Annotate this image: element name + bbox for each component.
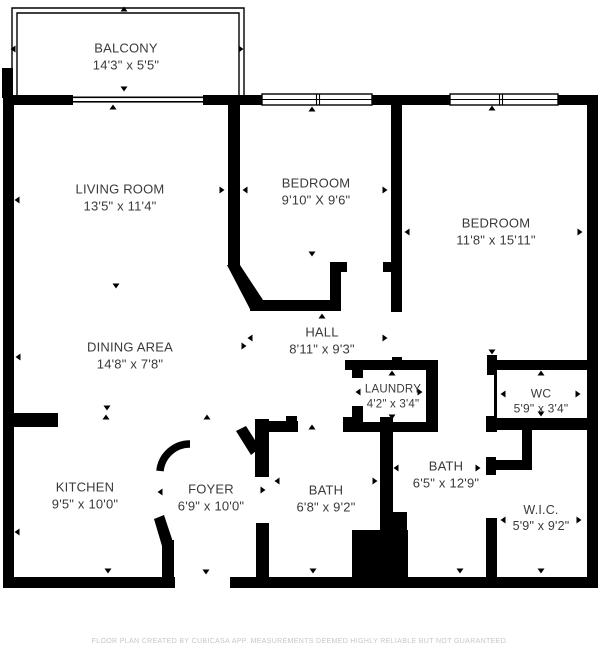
- room-dims: 9'10" X 9'6": [282, 192, 351, 209]
- dimension-marker-icon: [538, 371, 545, 376]
- wall: [345, 360, 438, 370]
- room-name: BEDROOM: [456, 215, 535, 232]
- dimension-marker-icon: [239, 46, 244, 53]
- room-dims: 5'9" x 9'2": [513, 518, 570, 534]
- wall-diagonal: [227, 265, 263, 311]
- room-name: FOYER: [178, 481, 244, 498]
- wall: [391, 105, 402, 312]
- room-dims: 14'8" x 7'8": [87, 356, 173, 373]
- dimension-marker-icon: [501, 391, 506, 398]
- dimension-marker-icon: [383, 187, 388, 194]
- room-label-bedroom-1: BEDROOM 9'10" X 9'6": [282, 175, 351, 208]
- dimension-marker-icon: [383, 335, 388, 342]
- sliding-door: [73, 101, 203, 103]
- room-dims: 6'5" x 12'9": [413, 475, 479, 492]
- room-label-balcony: BALCONY 14'3" x 5'5": [93, 40, 159, 73]
- room-name: LAUNDRY: [365, 382, 421, 397]
- dimension-marker-icon: [309, 107, 316, 112]
- dimension-marker-icon: [248, 335, 253, 342]
- room-name: BALCONY: [93, 40, 159, 57]
- dimension-marker-icon: [11, 46, 16, 53]
- dimension-marker-icon: [113, 284, 120, 289]
- room-dims: 8'11" x 9'3": [289, 341, 355, 358]
- dimension-marker-icon: [242, 343, 247, 350]
- dimension-marker-icon: [15, 197, 20, 204]
- wall: [3, 95, 14, 588]
- dimension-marker-icon: [203, 570, 210, 575]
- wall: [162, 540, 174, 578]
- room-dims: 9'5" x 10'0": [52, 496, 118, 513]
- sliding-door: [73, 97, 203, 99]
- dimension-marker-icon: [16, 354, 21, 361]
- wall: [486, 518, 497, 577]
- wall: [2, 68, 13, 98]
- wall: [352, 370, 363, 378]
- wall: [330, 262, 347, 272]
- dimension-marker-icon: [394, 465, 399, 472]
- dimension-marker-icon: [356, 389, 361, 396]
- room-name: KITCHEN: [52, 479, 118, 496]
- wall: [265, 421, 298, 432]
- room-dims: 4'2" x 3'4": [365, 397, 421, 412]
- wall: [372, 95, 450, 105]
- room-dims: 11'8" x 15'11": [456, 232, 535, 249]
- wall: [250, 300, 341, 311]
- room-dims: 6'9" x 10'0": [178, 498, 244, 515]
- wall-arc: [160, 444, 190, 471]
- dimension-marker-icon: [15, 529, 20, 536]
- thin-wall: [494, 370, 497, 418]
- dimension-marker-icon: [489, 350, 496, 355]
- room-label-living-room: LIVING ROOM 13'5" x 11'4": [76, 181, 165, 214]
- dimension-marker-icon: [405, 229, 410, 236]
- footer-disclaimer: FLOOR PLAN CREATED BY CUBICASA APP. MEAS…: [0, 638, 600, 645]
- room-name: BATH: [413, 458, 479, 475]
- dimension-marker-icon: [103, 415, 110, 420]
- dimension-marker-icon: [538, 569, 545, 574]
- room-label-wic: W.I.C. 5'9" x 9'2": [513, 502, 570, 534]
- dimension-marker-icon: [309, 425, 316, 430]
- wall: [256, 523, 269, 578]
- dimension-marker-icon: [389, 371, 396, 376]
- dimension-marker-icon: [373, 478, 378, 485]
- dimension-marker-icon: [457, 569, 464, 574]
- wall: [487, 418, 587, 430]
- room-name: BEDROOM: [282, 175, 351, 192]
- dimension-marker-icon: [243, 187, 248, 194]
- room-label-bedroom-2: BEDROOM 11'8" x 15'11": [456, 215, 535, 248]
- dimension-marker-icon: [104, 406, 111, 411]
- dimension-marker-icon: [204, 415, 211, 420]
- wall: [426, 360, 438, 432]
- wall: [3, 413, 58, 427]
- dimension-marker-icon: [105, 569, 112, 574]
- wall-diagonal: [154, 515, 173, 546]
- dimension-marker-icon: [158, 489, 163, 496]
- wall: [203, 95, 262, 105]
- dimension-marker-icon: [309, 252, 316, 257]
- dimension-marker-icon: [577, 517, 582, 524]
- dimension-marker-icon: [310, 569, 317, 574]
- wall: [3, 577, 175, 588]
- dimension-marker-icon: [576, 391, 581, 398]
- room-label-kitchen: KITCHEN 9'5" x 10'0": [52, 479, 118, 512]
- room-label-hall: HALL 8'11" x 9'3": [289, 324, 355, 357]
- room-label-laundry: LAUNDRY 4'2" x 3'4": [365, 382, 421, 411]
- dimension-marker-icon: [319, 314, 326, 319]
- dimension-marker-icon: [261, 487, 266, 494]
- room-name: DINING AREA: [87, 339, 173, 356]
- room-name: BATH: [296, 482, 355, 499]
- room-name: HALL: [289, 324, 355, 341]
- room-name: LIVING ROOM: [76, 181, 165, 198]
- wall: [487, 360, 587, 370]
- dimension-marker-icon: [578, 229, 583, 236]
- wall: [489, 460, 532, 470]
- room-label-bath-2: BATH 6'5" x 12'9": [413, 458, 479, 491]
- wall: [286, 416, 297, 422]
- floor-plan: BALCONY 14'3" x 5'5" LIVING ROOM 13'5" x…: [0, 0, 600, 651]
- room-dims: 6'8" x 9'2": [296, 499, 355, 516]
- room-dims: 13'5" x 11'4": [76, 198, 165, 215]
- dimension-marker-icon: [220, 187, 225, 194]
- dimension-marker-icon: [489, 106, 496, 111]
- wall: [380, 512, 407, 578]
- room-name: W.I.C.: [513, 502, 570, 518]
- room-label-foyer: FOYER 6'9" x 10'0": [178, 481, 244, 514]
- room-label-bath-1: BATH 6'8" x 9'2": [296, 482, 355, 515]
- dimension-marker-icon: [501, 517, 506, 524]
- wall: [230, 577, 598, 588]
- room-name: WC: [514, 387, 569, 402]
- wall: [587, 95, 598, 588]
- dimension-marker-icon: [121, 87, 128, 92]
- room-label-wc: WC 5'9" x 3'4": [514, 387, 569, 418]
- dimension-marker-icon: [275, 478, 280, 485]
- room-dims: 5'9" x 3'4": [514, 402, 569, 417]
- dimension-marker-icon: [110, 105, 117, 110]
- wall: [228, 105, 240, 267]
- room-label-dining-area: DINING AREA 14'8" x 7'8": [87, 339, 173, 372]
- dimension-marker-icon: [121, 7, 128, 12]
- room-dims: 14'3" x 5'5": [93, 57, 159, 74]
